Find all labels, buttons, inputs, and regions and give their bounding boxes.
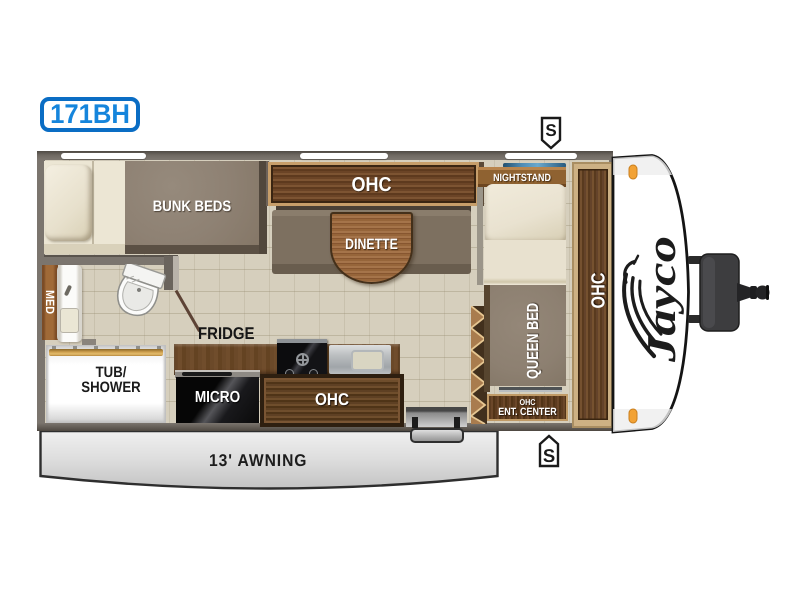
svg-text:S: S xyxy=(543,445,555,466)
svg-text:S: S xyxy=(545,121,556,140)
